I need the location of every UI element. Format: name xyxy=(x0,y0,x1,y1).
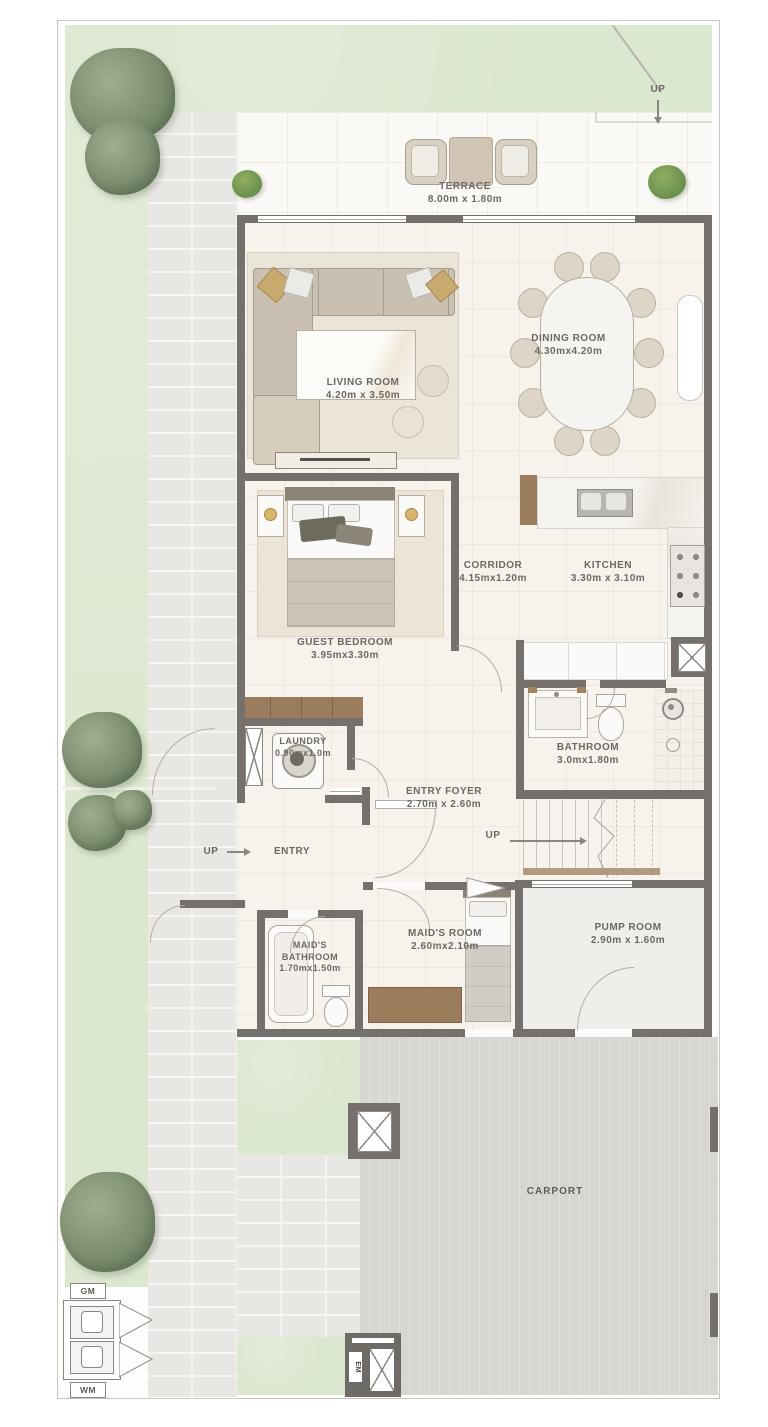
stove xyxy=(670,545,705,607)
sink-basin xyxy=(606,493,626,510)
wall xyxy=(516,680,586,688)
room-dims: 4.20m x 3.50m xyxy=(288,390,438,403)
room-name: KITCHEN xyxy=(584,560,632,571)
room-name: BATHROOM xyxy=(557,742,619,753)
window xyxy=(463,216,635,222)
maids-toilet-tank xyxy=(322,985,350,997)
room-name: PUMP ROOM xyxy=(594,922,661,933)
window-seat xyxy=(677,295,703,401)
room-label-pump-room: PUMP ROOM 2.90m x 1.60m xyxy=(558,922,698,947)
room-label-laundry: LAUNDRY 0.90mx1.0m xyxy=(248,736,358,759)
room-label-kitchen: KITCHEN 3.30m x 3.10m xyxy=(543,560,673,585)
electric-meter-x xyxy=(369,1348,395,1392)
electric-meter-label: EM xyxy=(349,1358,363,1376)
wall xyxy=(704,215,712,1037)
room-name: DINING ROOM xyxy=(531,333,605,344)
column-x xyxy=(357,1111,392,1152)
room-dims: 1.70mx1.50m xyxy=(275,963,345,975)
up-entry-arrow-shaft xyxy=(227,851,244,853)
room-label-entry: ENTRY xyxy=(252,846,332,859)
up-stairs-label: UP xyxy=(478,830,508,843)
vanity-faucet xyxy=(554,692,559,697)
wall xyxy=(237,473,459,481)
room-label-maids-room: MAID'S ROOM 2.60mx2.10m xyxy=(380,928,510,953)
meter-unit-dial xyxy=(81,1311,103,1333)
room-label-guest-bedroom: GUEST BEDROOM 3.95mx3.30m xyxy=(270,637,420,662)
up-terrace-arrow-shaft xyxy=(657,100,659,117)
room-label-dining: DINING ROOM 4.30mx4.20m xyxy=(496,333,641,358)
room-label-corridor: CORRIDOR 4.15mx1.20m xyxy=(428,560,558,585)
vanity-wood-trim xyxy=(528,687,537,693)
terrace-seat-cushion xyxy=(501,145,529,177)
room-dims: 3.0mx1.80m xyxy=(523,755,653,768)
room-label-entry-foyer: ENTRY FOYER 2.70m x 2.60m xyxy=(374,786,514,811)
side-table xyxy=(392,406,424,438)
room-dims: 4.15mx1.20m xyxy=(428,573,558,586)
shower-valve xyxy=(665,688,677,693)
wall xyxy=(516,640,524,798)
up-entry-label: UP xyxy=(196,846,226,859)
door-opening xyxy=(465,1029,513,1037)
room-name: CORRIDOR xyxy=(464,560,522,571)
vanity-basin xyxy=(535,697,581,730)
stairs-wood-edge xyxy=(523,868,660,875)
paver-area-bottom xyxy=(237,1155,360,1337)
room-dims: 2.60mx2.10m xyxy=(380,941,510,954)
window xyxy=(258,216,406,222)
room-dims: 8.00m x 1.80m xyxy=(390,194,540,207)
nightstand-lamp xyxy=(264,508,277,521)
grass-strip-bottom xyxy=(237,1337,347,1395)
stairs-dashed xyxy=(634,800,635,876)
bed-blanket xyxy=(287,558,395,627)
window xyxy=(532,881,632,887)
tree xyxy=(62,712,142,788)
room-label-terrace: TERRACE 8.00m x 1.80m xyxy=(390,181,540,206)
maids-bed-blanket xyxy=(465,945,511,1022)
stairs-break-line xyxy=(592,798,622,878)
shower-head-center xyxy=(668,704,674,710)
room-name: TERRACE xyxy=(439,181,491,192)
wall xyxy=(710,1107,718,1152)
wall xyxy=(710,1293,718,1337)
sink-basin xyxy=(581,493,601,510)
tv xyxy=(300,458,370,461)
wardrobe xyxy=(240,697,363,718)
tree xyxy=(85,120,160,195)
wall xyxy=(237,215,245,803)
meter-door-swing xyxy=(119,1300,155,1380)
room-name: GUEST BEDROOM xyxy=(297,637,393,648)
kitchen-base-cabinets xyxy=(520,642,668,680)
wall xyxy=(257,910,265,1037)
room-label-carport: CARPORT xyxy=(490,1186,620,1199)
nightstand-lamp xyxy=(405,508,418,521)
carport-floor xyxy=(360,1037,718,1395)
door-opening xyxy=(575,1029,632,1037)
right-arrow-icon xyxy=(244,848,251,856)
room-dims: 3.30m x 3.10m xyxy=(543,573,673,586)
up-terrace-label: UP xyxy=(640,84,676,97)
wall xyxy=(180,900,245,908)
wall xyxy=(237,718,363,726)
room-dims: 3.95mx3.30m xyxy=(270,650,420,663)
room-dims: 4.30mx4.20m xyxy=(496,346,641,359)
meter-unit-dial xyxy=(81,1346,103,1368)
floor-plan: EM GM WM UP UP UP TERRACE 8.00m x 1.80m … xyxy=(0,0,768,1427)
tree xyxy=(112,790,152,830)
right-arrow-icon xyxy=(580,837,587,845)
room-name: ENTRY FOYER xyxy=(406,786,482,797)
room-name: MAID'S ROOM xyxy=(408,928,482,939)
bed-headboard xyxy=(285,487,395,501)
room-name: LIVING ROOM xyxy=(327,377,400,388)
room-dims: 2.70m x 2.60m xyxy=(374,799,514,812)
room-dims: 2.90m x 1.60m xyxy=(558,935,698,948)
room-label-living: LIVING ROOM 4.20m x 3.50m xyxy=(288,377,438,402)
gas-meter-label: GM xyxy=(70,1283,106,1299)
wall xyxy=(600,680,666,688)
grass-patch-below-house xyxy=(237,1040,360,1155)
grass-left-strip xyxy=(65,25,148,1287)
room-dims: 0.90mx1.0m xyxy=(248,748,358,760)
column-x xyxy=(678,643,706,672)
room-name: LAUNDRY xyxy=(279,736,326,746)
up-stairs-arrow-shaft xyxy=(510,840,580,842)
tree xyxy=(60,1172,155,1272)
stairs-dashed xyxy=(652,800,653,876)
maids-bed-pillow xyxy=(469,901,507,917)
down-arrow-icon xyxy=(654,117,662,124)
room-name: ENTRY xyxy=(274,846,310,857)
room-name: CARPORT xyxy=(527,1186,583,1197)
water-meter-label: WM xyxy=(70,1382,106,1398)
terrace-step-line-v xyxy=(595,110,597,123)
maids-dresser xyxy=(368,987,462,1023)
wedge-door xyxy=(466,876,508,900)
room-label-maids-bathroom: MAID'S BATHROOM 1.70mx1.50m xyxy=(275,940,345,975)
room-label-bathroom: BATHROOM 3.0mx1.80m xyxy=(523,742,653,767)
shower-drain xyxy=(666,738,680,752)
vanity-wood-trim xyxy=(577,687,586,693)
terrace-seat-cushion xyxy=(411,145,439,177)
maids-toilet-bowl xyxy=(324,997,348,1027)
electric-meter-slot xyxy=(352,1338,394,1343)
stairs xyxy=(523,800,603,868)
terrace-table xyxy=(449,137,493,186)
room-name: MAID'S BATHROOM xyxy=(282,940,338,962)
wall xyxy=(515,880,523,1037)
kitchen-wood-cabinet xyxy=(520,475,537,525)
wall xyxy=(355,910,363,1037)
